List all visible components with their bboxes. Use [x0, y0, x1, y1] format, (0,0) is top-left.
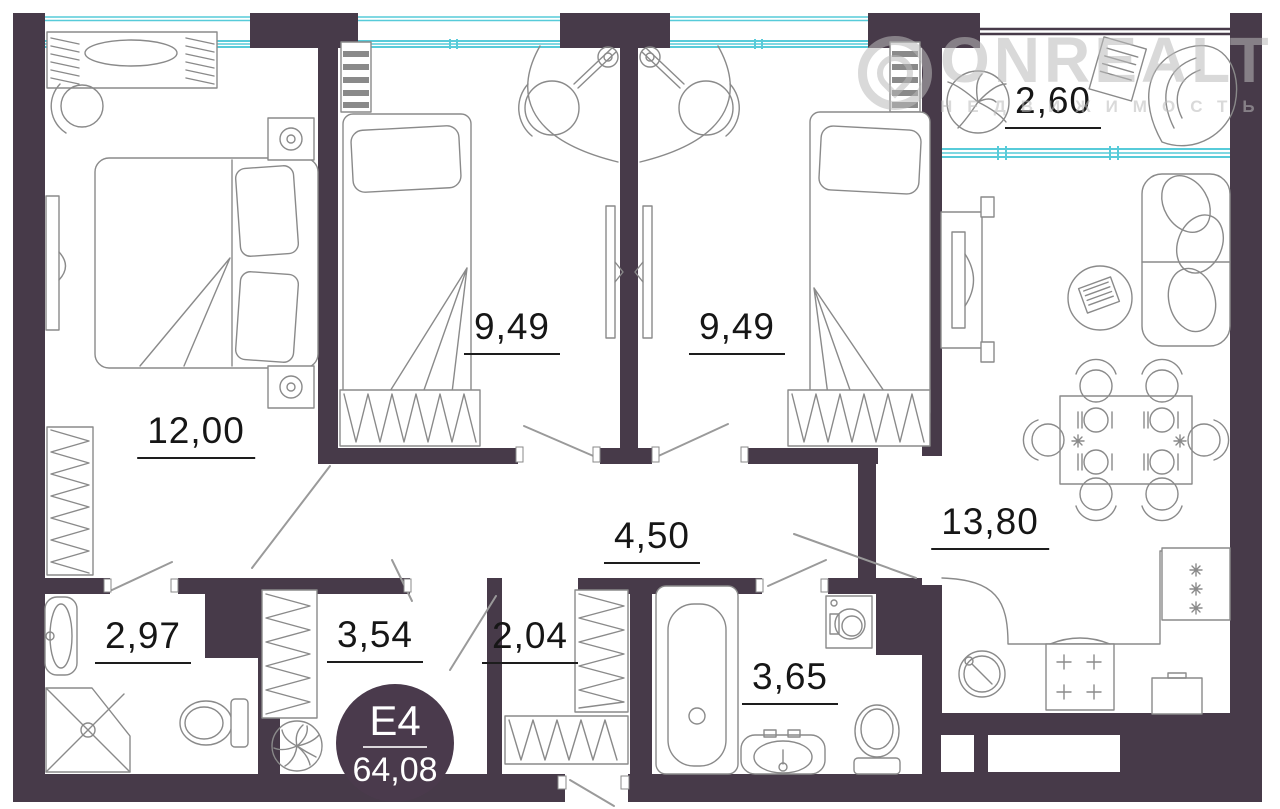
area-label-hallway: 4,50 — [604, 517, 700, 564]
stove — [1046, 644, 1114, 710]
hall-stub-right — [858, 448, 876, 588]
desk-chair — [679, 81, 733, 135]
area-label-master-bedroom: 12,00 — [137, 412, 255, 459]
kitchen-wall — [922, 713, 1240, 731]
unit-badge-code: E4 — [369, 700, 420, 742]
hall-wall-left — [318, 448, 518, 464]
wardrobe-shelving — [575, 590, 628, 712]
duct-block — [205, 578, 260, 658]
bath-corner-block — [876, 578, 922, 655]
wardrobe-shelving — [505, 716, 628, 764]
partition-right-lower — [922, 585, 942, 731]
partition-kids-kids — [620, 44, 638, 464]
kitchen-cabinet — [1152, 678, 1202, 714]
wall-wardrobe-bath — [630, 578, 652, 774]
kitchen-window-slot-2 — [988, 735, 1120, 772]
lower-wall-f — [828, 578, 878, 594]
area-label-wardrobe-left: 3,54 — [327, 616, 423, 663]
nightstand — [268, 118, 314, 160]
door-bedroom-left — [524, 426, 598, 458]
living-kitchen-furniture — [941, 167, 1232, 714]
floor-plan: 12,00 9,49 9,49 2,60 13,80 4,50 2,97 3,5… — [0, 0, 1280, 809]
wall-right — [1230, 13, 1262, 802]
area-label-balcony: 2,60 — [1005, 82, 1101, 129]
nightstand — [268, 366, 314, 408]
area-label-bathroom-small: 2,97 — [95, 617, 191, 664]
area-label-living-kitchen: 13,80 — [931, 503, 1049, 550]
area-label-bedroom-left: 9,49 — [464, 308, 560, 355]
area-label-bathroom-large: 3,65 — [742, 658, 838, 705]
balcony-chair — [1149, 46, 1237, 146]
kitchen-window-slot-1 — [941, 735, 974, 772]
tv-living — [952, 232, 965, 328]
vanity-chair — [61, 85, 103, 127]
unit-badge-divider — [363, 746, 427, 748]
unit-badge-total-area: 64,08 — [352, 753, 437, 787]
balcony-glazing — [942, 146, 1230, 160]
door-living — [794, 534, 916, 578]
bedroom-left-furniture — [340, 42, 623, 446]
pillow — [350, 125, 461, 193]
wall-left — [13, 13, 45, 802]
pillow — [818, 125, 921, 194]
tv-master — [46, 196, 59, 330]
door-bathroom-large — [768, 560, 826, 586]
tv-right-room — [643, 206, 652, 338]
wall-top-segment-3 — [868, 13, 980, 48]
door-entrance — [570, 780, 614, 806]
balcony-parapet — [965, 29, 1232, 34]
wall-top-segment-2 — [560, 13, 670, 48]
unit-badge: E4 64,08 — [336, 684, 454, 802]
desk-chair — [525, 81, 579, 135]
tv-left-room — [606, 206, 615, 338]
door-bathroom-small — [112, 562, 172, 590]
pillow — [235, 271, 299, 363]
hall-wall-center — [600, 448, 652, 464]
book — [1079, 277, 1120, 313]
wall-bottom-right — [628, 774, 1262, 802]
door-bedroom-right — [654, 424, 728, 458]
area-label-wardrobe-right: 2,04 — [482, 617, 578, 664]
partition-master-kids — [318, 44, 338, 464]
area-label-bedroom-right: 9,49 — [689, 308, 785, 355]
lower-wall-a — [45, 578, 110, 594]
wall-bottom-left — [13, 774, 565, 802]
master-bedroom-furniture — [46, 32, 318, 575]
pillow — [235, 165, 299, 257]
bedroom-right-furniture — [635, 42, 930, 446]
door-master — [252, 466, 330, 568]
